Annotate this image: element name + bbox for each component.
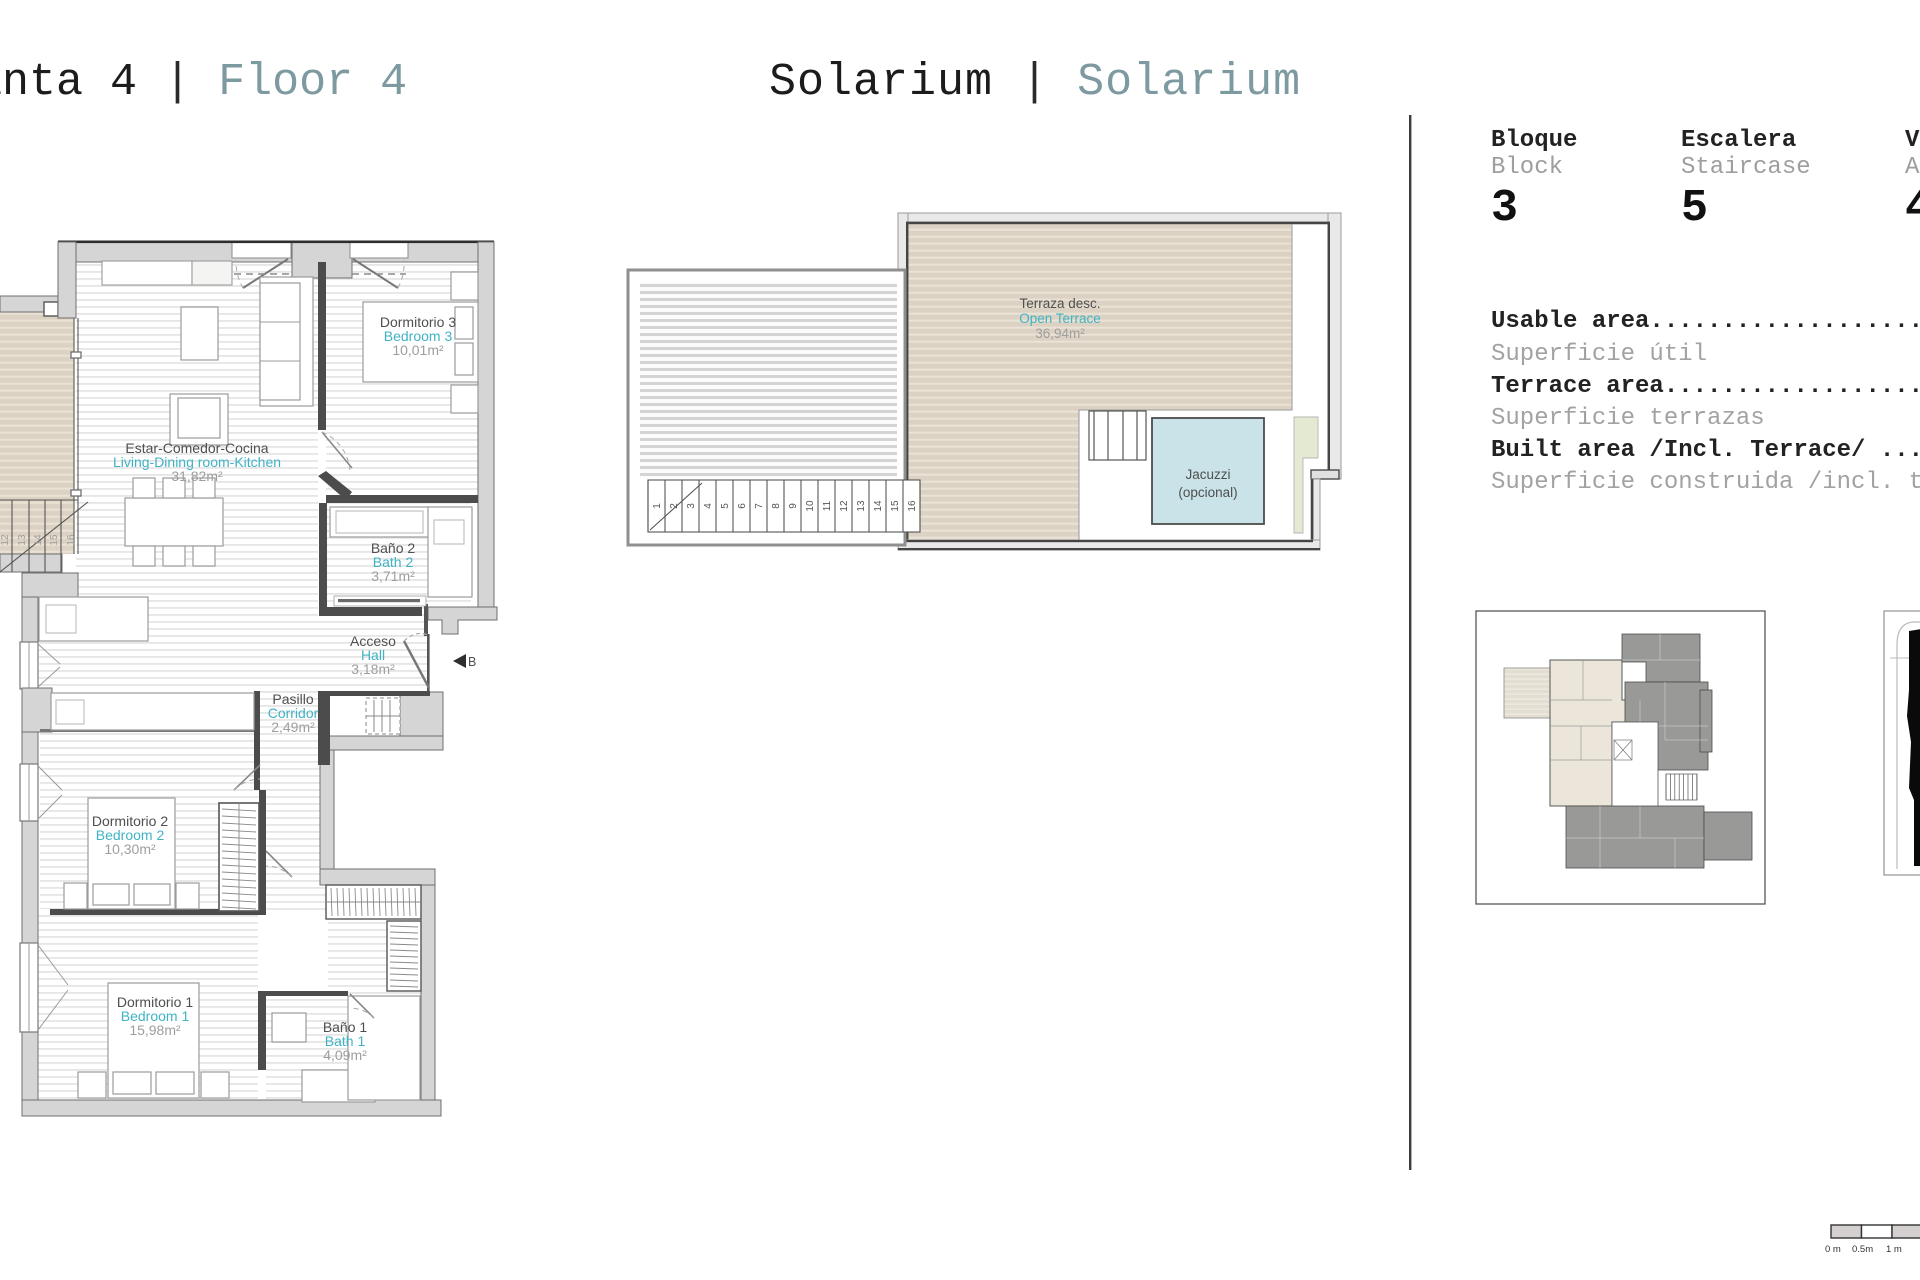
svg-text:5: 5 — [1681, 183, 1708, 234]
svg-text:3,18m²: 3,18m² — [351, 661, 395, 677]
svg-text:Superficie construida /incl. t: Superficie construida /incl. terraza — [1491, 469, 1920, 496]
svg-text:14: 14 — [873, 500, 884, 512]
svg-text:2,49m²: 2,49m² — [271, 719, 315, 735]
svg-text:14: 14 — [33, 534, 44, 546]
svg-text:13: 13 — [856, 500, 867, 512]
svg-text:Terraza desc.: Terraza desc. — [1019, 296, 1100, 311]
svg-text:Vivienda: Vivienda — [1905, 127, 1920, 154]
svg-text:4: 4 — [703, 503, 714, 509]
svg-text:10: 10 — [805, 500, 816, 512]
svg-text:3: 3 — [1491, 183, 1518, 234]
svg-text:0 m: 0 m — [1825, 1244, 1841, 1255]
svg-text:B: B — [468, 655, 476, 669]
svg-text:16: 16 — [66, 534, 77, 546]
svg-text:15,98m²: 15,98m² — [129, 1022, 181, 1038]
svg-text:15: 15 — [49, 534, 60, 546]
svg-text:Solarium | Solarium: Solarium | Solarium — [769, 57, 1301, 108]
svg-text:Usable area...................: Usable area.......................... — [1491, 308, 1920, 335]
svg-text:3,71m²: 3,71m² — [371, 568, 415, 584]
svg-text:9: 9 — [788, 503, 799, 509]
svg-text:Terrace area..................: Terrace area......................... — [1491, 373, 1920, 400]
svg-text:Jacuzzi: Jacuzzi — [1185, 467, 1230, 482]
svg-text:13: 13 — [17, 534, 28, 546]
svg-text:36,94m²: 36,94m² — [1035, 326, 1085, 341]
svg-text:2: 2 — [669, 503, 680, 509]
svg-text:12: 12 — [839, 500, 850, 512]
svg-text:31,82m²: 31,82m² — [171, 468, 223, 484]
svg-text:7: 7 — [754, 503, 765, 509]
svg-text:Superficie terrazas: Superficie terrazas — [1491, 405, 1765, 432]
svg-text:Escalera: Escalera — [1681, 127, 1796, 154]
svg-text:1: 1 — [652, 503, 663, 509]
svg-text:3: 3 — [686, 503, 697, 509]
svg-text:Open Terrace: Open Terrace — [1019, 311, 1101, 326]
svg-text:Block: Block — [1491, 154, 1563, 181]
svg-text:Planta 4 | Floor 4: Planta 4 | Floor 4 — [0, 57, 407, 108]
svg-text:(opcional): (opcional) — [1178, 485, 1237, 500]
svg-text:8: 8 — [771, 503, 782, 509]
svg-text:Bloque: Bloque — [1491, 127, 1577, 154]
svg-text:4: 4 — [1905, 183, 1920, 234]
svg-text:16: 16 — [907, 500, 918, 512]
svg-text:4,09m²: 4,09m² — [323, 1047, 367, 1063]
svg-text:5: 5 — [720, 503, 731, 509]
svg-text:15: 15 — [890, 500, 901, 512]
svg-text:10,01m²: 10,01m² — [392, 342, 444, 358]
svg-text:1 m: 1 m — [1886, 1244, 1902, 1255]
svg-text:Superficie útil: Superficie útil — [1491, 341, 1707, 368]
svg-text:12: 12 — [0, 534, 11, 546]
svg-text:Staircase: Staircase — [1681, 154, 1811, 181]
svg-text:Apartment: Apartment — [1905, 154, 1920, 181]
svg-text:0.5m: 0.5m — [1852, 1244, 1873, 1255]
svg-text:6: 6 — [737, 503, 748, 509]
svg-text:11: 11 — [822, 500, 833, 511]
svg-text:Built area /Incl. Terrace/ ...: Built area /Incl. Terrace/ .......... — [1491, 437, 1920, 464]
svg-text:10,30m²: 10,30m² — [104, 841, 156, 857]
